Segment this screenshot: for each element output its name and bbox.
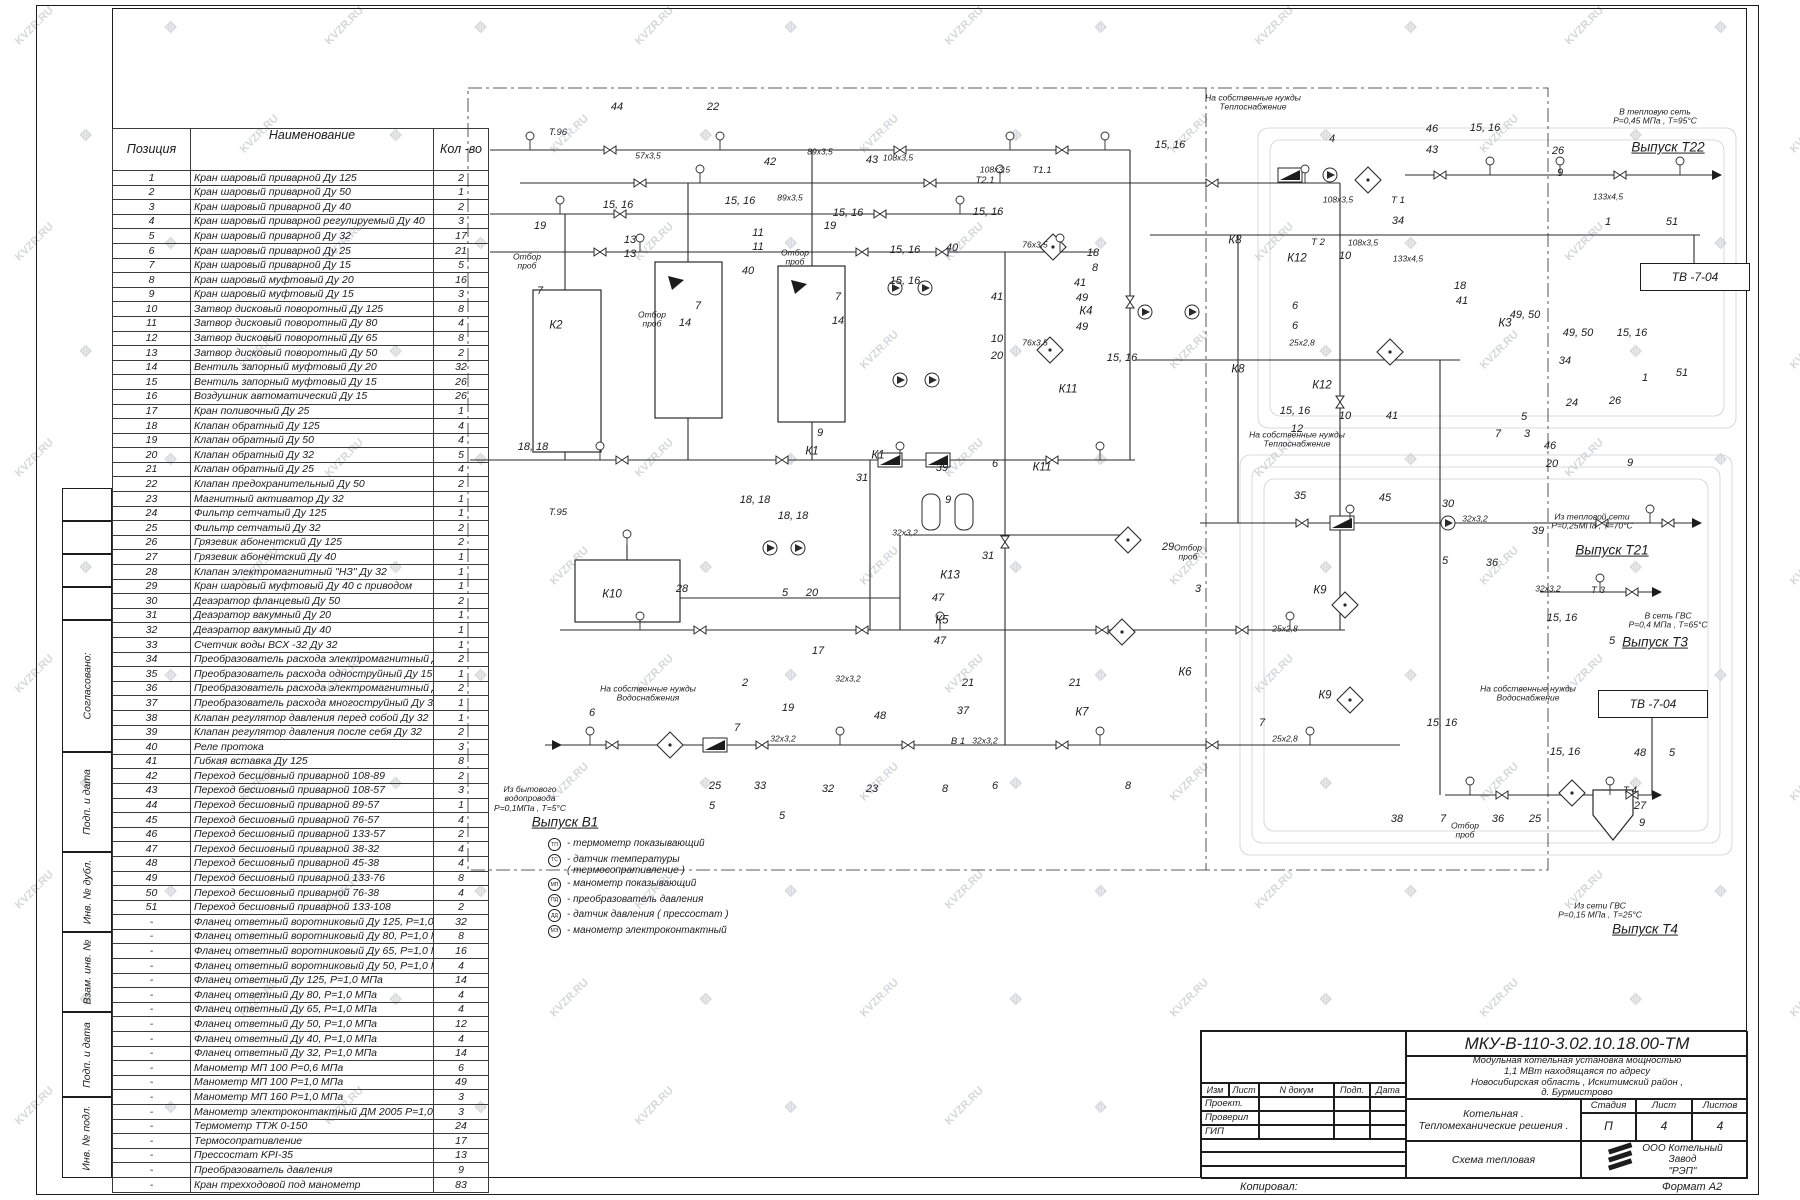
schematic-label: 26 [1609, 395, 1621, 407]
schematic-label: 15, 16 [1550, 746, 1581, 758]
table-row: 46Переход бесшовный приварной 133-572 [113, 827, 489, 842]
row-qty: 1 [434, 579, 489, 594]
row-name: Затвор дисковый поворотный Ду 125 [191, 302, 434, 317]
schematic-label: 18, 18 [518, 441, 549, 453]
schematic-label: 8 [1125, 780, 1131, 792]
row-position: 33 [113, 638, 191, 653]
row-position: 8 [113, 273, 191, 288]
schematic-label: 25х2,8 [1272, 624, 1298, 633]
schematic-label: 40 [742, 265, 754, 277]
row-qty: 26 [434, 389, 489, 404]
row-name: Фильтр сетчатый Ду 125 [191, 506, 434, 521]
row-qty: 2 [434, 535, 489, 550]
table-row: 50Переход бесшовный приварной 76-384 [113, 886, 489, 901]
table-row: 29Кран шаровый муфтовый Ду 40 с приводом… [113, 579, 489, 594]
row-name: Кран шаровый приварной регулируемый Ду 4… [191, 214, 434, 229]
schematic-label: 6 [1292, 320, 1298, 332]
row-name: Фланец ответный воротниковый Ду 65, Р=1,… [191, 944, 434, 959]
row-name: Кран шаровый приварной Ду 15 [191, 258, 434, 273]
schematic-label: В сеть ГВС Р=0,4 МПа , Т=65°С [1628, 612, 1707, 631]
table-row: 41Гибкая вставка Ду 1258 [113, 754, 489, 769]
schematic-label: 5 [779, 810, 785, 822]
outlet-label: Выпуск Т21 [1575, 544, 1648, 559]
schematic-label: 15, 16 [1547, 612, 1578, 624]
company-name: ООО Котельный Завод "РЭП" [1642, 1143, 1722, 1178]
outlet-label: Выпуск Т4 [1612, 923, 1678, 938]
table-row: -Кран трехходовой под манометр83 [113, 1177, 489, 1192]
row-name: Грязевик абонентский Ду 40 [191, 550, 434, 565]
row-position: 31 [113, 608, 191, 623]
row-position: 29 [113, 579, 191, 594]
row-position: - [113, 1148, 191, 1163]
legend-item: ТС- датчик температуры ( термосопративле… [548, 854, 729, 876]
row-qty: 16 [434, 944, 489, 959]
row-name: Кран шаровый приварной Ду 25 [191, 243, 434, 258]
row-name: Деаэратор фланцевый Ду 50 [191, 594, 434, 609]
row-position: 24 [113, 506, 191, 521]
row-name: Фланец ответный воротниковый Ду 80, Р=1,… [191, 929, 434, 944]
row-qty: 2 [434, 827, 489, 842]
schematic-label: 32х3,2 [892, 528, 918, 537]
row-position: 16 [113, 389, 191, 404]
table-row: 22Клапан предохранительный Ду 502 [113, 477, 489, 492]
table-row: -Преобразователь давления9 [113, 1163, 489, 1178]
schematic-label: 5 [1521, 411, 1527, 423]
schematic-label: 7 [537, 285, 543, 297]
col-header-name: Наименование [191, 129, 434, 171]
schematic-label: 26 [1552, 145, 1564, 157]
sheets-label: Листов [1692, 1099, 1748, 1113]
schematic-label: 2 [742, 677, 748, 689]
schematic-label: К9 [1313, 585, 1326, 598]
row-name: Переход бесшовный приварной 89-57 [191, 798, 434, 813]
table-row: 16Воздушник автоматический Ду 1526 [113, 389, 489, 404]
row-position: 19 [113, 433, 191, 448]
row-position: 17 [113, 404, 191, 419]
row-name: Воздушник автоматический Ду 15 [191, 389, 434, 404]
instrument-circle-icon: МП [548, 878, 561, 891]
table-row: 9Кран шаровый муфтовый Ду 153 [113, 287, 489, 302]
schematic-label: К6 [1178, 667, 1191, 680]
table-row: 37Преобразователь расхода многоструйный … [113, 696, 489, 711]
table-row: 44Переход бесшовный приварной 89-571 [113, 798, 489, 813]
schematic-label: 18 [1087, 247, 1099, 259]
schematic-label: 11 [752, 227, 763, 239]
schematic-label: К8 [1231, 364, 1244, 377]
row-name: Фланец ответный Ду 32, Р=1,0 МПа [191, 1046, 434, 1061]
row-position: 23 [113, 492, 191, 507]
row-name: Деаэратор вакумный Ду 40 [191, 623, 434, 638]
row-name: Фланец ответный воротниковый Ду 125, Р=1… [191, 915, 434, 930]
row-position: - [113, 1032, 191, 1047]
row-position: - [113, 988, 191, 1003]
sidebar-empty-cell [62, 521, 112, 554]
row-name: Переход бесшовный приварной 133-76 [191, 871, 434, 886]
schematic-label: 49 [1076, 292, 1088, 304]
schematic-label: 41 [991, 291, 1003, 303]
schematic-label: 15, 16 [833, 207, 864, 219]
col-header-qty: Кол -во [434, 129, 489, 171]
schematic-label: 39 [936, 462, 948, 474]
schematic-label: 4 [1329, 133, 1335, 145]
table-row: 36Преобразователь расхода электромагнитн… [113, 681, 489, 696]
row-name: Счетчик воды ВСХ -32 Ду 32 [191, 638, 434, 653]
row-position: - [113, 1061, 191, 1076]
stamp-empty [1370, 1111, 1406, 1125]
table-row: -Фланец ответный Ду 50, Р=1,0 МПа12 [113, 1017, 489, 1032]
schematic-label: 41 [1456, 295, 1468, 307]
schematic-label: 17 [812, 645, 824, 657]
row-name: Переход бесшовный приварной 133-108 [191, 900, 434, 915]
schematic-label: В 1 [951, 737, 965, 747]
stamp-empty [1334, 1111, 1370, 1125]
row-name: Кран шаровый приварной Ду 32 [191, 229, 434, 244]
row-qty: 1 [434, 667, 489, 682]
row-qty: 1 [434, 638, 489, 653]
schematic-label: 13 [624, 234, 636, 246]
schematic-label: Т 4 [1623, 786, 1637, 796]
schematic-label: Т2.1 [975, 176, 994, 186]
schematic-label: 21 [1069, 677, 1081, 689]
row-name: Кран поливочный Ду 25 [191, 404, 434, 419]
row-position: 27 [113, 550, 191, 565]
row-qty: 12 [434, 1017, 489, 1032]
schematic-label: К2 [549, 320, 562, 333]
row-name: Манометр МП 100 Р=0,6 МПа [191, 1061, 434, 1076]
row-name: Клапан обратный Ду 25 [191, 462, 434, 477]
row-qty: 3 [434, 740, 489, 755]
row-position: 40 [113, 740, 191, 755]
schematic-label: К4 [1079, 306, 1092, 319]
table-row: -Фланец ответный воротниковый Ду 50, Р=1… [113, 959, 489, 974]
row-name: Фланец ответный Ду 125, Р=1,0 МПа [191, 973, 434, 988]
row-position: 42 [113, 769, 191, 784]
row-qty: 2 [434, 681, 489, 696]
row-qty: 3 [434, 1090, 489, 1105]
row-qty: 2 [434, 200, 489, 215]
schematic-label: 15, 16 [1470, 122, 1501, 134]
doc-description: Модульная котельная установка мощностью … [1406, 1056, 1748, 1099]
table-row: 33Счетчик воды ВСХ -32 Ду 321 [113, 638, 489, 653]
schematic-label: 34 [1559, 355, 1571, 367]
row-name: Манометр МП 160 Р=1,0 МПа [191, 1090, 434, 1105]
row-name: Переход бесшовный приварной 76-57 [191, 813, 434, 828]
stamp-h-ndoc: N докум [1259, 1083, 1334, 1097]
parts-table: Позиция Наименование Кол -во 1Кран шаров… [112, 128, 489, 1193]
schematic-label: 32х3,2 [770, 734, 796, 743]
schematic-label: 43 [866, 154, 878, 166]
doc-number: МКУ-В-110-3.02.10.18.00-ТМ [1406, 1031, 1748, 1056]
row-qty: 1 [434, 798, 489, 813]
legend-text: - преобразователь давления [567, 894, 703, 905]
schematic-label: Отбор проб [1174, 544, 1202, 563]
row-position: 22 [113, 477, 191, 492]
table-row: 27Грязевик абонентский Ду 401 [113, 550, 489, 565]
row-name: Прессостат KPI-35 [191, 1148, 434, 1163]
title-block: Изм Лист N докум Подп. Дата Проект.Прове… [1200, 1030, 1747, 1178]
legend-text: - датчик давления ( прессостат ) [567, 909, 729, 920]
row-name: Преобразователь расхода электромагнитный… [191, 681, 434, 696]
sidebar-cell: Инв. № дубл. [62, 852, 112, 932]
instrument-circle-icon: МЭ [548, 925, 561, 938]
table-row: 51Переход бесшовный приварной 133-1082 [113, 900, 489, 915]
table-row: 31Деаэратор вакумный Ду 201 [113, 608, 489, 623]
row-qty: 14 [434, 973, 489, 988]
stamp-role-label: Проверил [1201, 1111, 1259, 1125]
table-row: -Манометр МП 100 Р=1,0 МПа49 [113, 1075, 489, 1090]
row-name: Вентиль запорный муфтовый Ду 20 [191, 360, 434, 375]
schematic-label: 49, 50 [1510, 309, 1541, 321]
row-qty: 1 [434, 550, 489, 565]
schematic-label: Отбор проб [638, 311, 666, 330]
row-position: 5 [113, 229, 191, 244]
schematic-label: 36 [1492, 813, 1504, 825]
schematic-label: 57х3,5 [635, 151, 661, 160]
schematic-label: 30 [1442, 498, 1454, 510]
stamp-role-label: ГИП [1201, 1125, 1259, 1139]
table-row: 3Кран шаровый приварной Ду 402 [113, 200, 489, 215]
row-name: Клапан обратный Ду 50 [191, 433, 434, 448]
row-position: 35 [113, 667, 191, 682]
row-qty: 2 [434, 652, 489, 667]
schematic-label: 133х4,5 [1593, 192, 1623, 201]
row-position: 43 [113, 783, 191, 798]
schematic-label: К7 [1075, 707, 1088, 720]
schematic-label: 51 [1676, 367, 1688, 379]
row-qty: 21 [434, 243, 489, 258]
row-name: Термометр ТТЖ 0-150 [191, 1119, 434, 1134]
row-qty: 2 [434, 900, 489, 915]
schematic-label: 15, 16 [890, 275, 921, 287]
instrument-circle-icon: ДД [548, 909, 561, 922]
schematic-label: 20 [1546, 458, 1558, 470]
row-qty: 4 [434, 813, 489, 828]
row-position: 12 [113, 331, 191, 346]
table-row: 21Клапан обратный Ду 254 [113, 462, 489, 477]
row-name: Переход бесшовный приварной 76-38 [191, 886, 434, 901]
row-position: 47 [113, 842, 191, 857]
legend-text: - манометр показывающий [567, 878, 696, 889]
table-row: 4Кран шаровый приварной регулируемый Ду … [113, 214, 489, 229]
row-name: Преобразователь расхода многоструйный Ду… [191, 696, 434, 711]
schematic-label: 46 [1544, 440, 1556, 452]
schematic-label: 89х3,5 [777, 193, 803, 202]
schematic-label: 15, 16 [725, 195, 756, 207]
stamp-empty [1334, 1097, 1370, 1111]
row-qty: 1 [434, 710, 489, 725]
table-row: -Фланец ответный воротниковый Ду 65, Р=1… [113, 944, 489, 959]
row-name: Переход бесшовный приварной 38-32 [191, 842, 434, 857]
legend-item: ДД- датчик давления ( прессостат ) [548, 909, 729, 922]
row-qty: 17 [434, 1134, 489, 1149]
schematic-label: На собственные нужды Водоснабжения [600, 685, 696, 704]
table-row: 17Кран поливочный Ду 251 [113, 404, 489, 419]
row-name: Фланец ответный Ду 80, Р=1,0 МПа [191, 988, 434, 1003]
row-name: Вентиль запорный муфтовый Ду 15 [191, 375, 434, 390]
symbols-legend: ТП- термометр показывающийТС- датчик тем… [548, 838, 729, 940]
table-row: 6Кран шаровый приварной Ду 2521 [113, 243, 489, 258]
row-qty: 9 [434, 1163, 489, 1178]
table-row: 14Вентиль запорный муфтовый Ду 2032 [113, 360, 489, 375]
schematic-label: 48 [1634, 747, 1646, 759]
row-qty: 16 [434, 273, 489, 288]
schematic-label: 5 [1442, 555, 1448, 567]
table-row: 28Клапан электромагнитный "НЗ" Ду 321 [113, 565, 489, 580]
stamp-empty [1334, 1125, 1370, 1139]
row-name: Клапан регулятор давления после себя Ду … [191, 725, 434, 740]
row-name: Преобразователь давления [191, 1163, 434, 1178]
schematic-label: 9 [945, 494, 951, 506]
table-row: 5Кран шаровый приварной Ду 3217 [113, 229, 489, 244]
schematic-label: 76х3,5 [1022, 240, 1048, 249]
stage-label: Стадия [1581, 1099, 1636, 1113]
table-row: 30Деаэратор фланцевый Ду 502 [113, 594, 489, 609]
row-name: Затвор дисковый поворотный Ду 50 [191, 346, 434, 361]
schematic-label: К12 [1312, 380, 1332, 393]
schematic-label: 25х2,8 [1289, 338, 1315, 347]
sheets-value: 4 [1692, 1113, 1748, 1141]
row-qty: 3 [434, 1105, 489, 1120]
table-row: 24Фильтр сетчатый Ду 1251 [113, 506, 489, 521]
legend-item: ТП- термометр показывающий [548, 838, 729, 851]
schematic-label: 7 [1440, 813, 1446, 825]
row-position: - [113, 1119, 191, 1134]
schematic-label: 89х3,5 [807, 147, 833, 156]
row-position: 37 [113, 696, 191, 711]
schematic-label: 1 [1605, 216, 1611, 228]
schematic-label: 18 [1454, 280, 1466, 292]
equipment-box: ТВ -7-04 [1640, 263, 1750, 291]
schematic-label: 6 [992, 780, 998, 792]
schematic-label: 10 [1339, 410, 1351, 422]
schematic-label: 19 [824, 220, 836, 232]
sidebar-empty-cell [62, 488, 112, 521]
schematic-label: 6 [992, 458, 998, 470]
schematic-label: 32х3,2 [1535, 584, 1561, 593]
row-qty: 32 [434, 360, 489, 375]
schematic-label: 19 [782, 702, 794, 714]
row-name: Кран шаровый приварной Ду 125 [191, 171, 434, 186]
stamp-h-izm: Изм [1201, 1083, 1229, 1097]
schematic-label: 6 [1292, 300, 1298, 312]
schematic-label: 7 [695, 300, 701, 312]
schematic-label: 31 [856, 472, 868, 484]
schematic-label: 36 [1486, 557, 1498, 569]
table-row: 12Затвор дисковый поворотный Ду 658 [113, 331, 489, 346]
schematic-label: 108х3,5 [1348, 238, 1378, 247]
table-row: 7Кран шаровый приварной Ду 155 [113, 258, 489, 273]
equipment-box: ТВ -7-04 [1598, 690, 1708, 718]
schematic-label: К10 [602, 589, 622, 602]
schematic-label: 46 [1426, 123, 1438, 135]
table-row: -Термометр ТТЖ 0-15024 [113, 1119, 489, 1134]
row-position: 4 [113, 214, 191, 229]
schematic-label: 15, 16 [603, 199, 634, 211]
row-name: Манометр электроконтактный ДМ 2005 Р=1,0… [191, 1105, 434, 1120]
row-qty: 5 [434, 258, 489, 273]
row-position: - [113, 1075, 191, 1090]
row-name: Фланец ответный воротниковый Ду 50, Р=1,… [191, 959, 434, 974]
schematic-label: Из сети ГВС Р=0,15 МПа , Т=25°С [1558, 902, 1642, 921]
schematic-label: 5 [782, 587, 788, 599]
stamp-empty [1259, 1125, 1334, 1139]
schematic-label: 32х3,2 [835, 674, 861, 683]
schematic-label: 108х3,5 [1323, 195, 1353, 204]
table-row: 8Кран шаровый муфтовый Ду 2016 [113, 273, 489, 288]
row-qty: 17 [434, 229, 489, 244]
schematic-label: 7 [1259, 717, 1265, 729]
row-position: 49 [113, 871, 191, 886]
row-name: Кран трехходовой под манометр [191, 1177, 434, 1192]
row-position: 1 [113, 171, 191, 186]
row-position: 20 [113, 448, 191, 463]
schematic-label: 8 [1092, 262, 1098, 274]
row-name: Термосопративление [191, 1134, 434, 1149]
row-qty: 4 [434, 316, 489, 331]
row-name: Преобразователь расхода одноструйный Ду … [191, 667, 434, 682]
schematic-label: 15, 16 [1107, 352, 1138, 364]
schematic-label: Т.96 [549, 128, 567, 138]
schematic-label: 47 [932, 592, 944, 604]
row-position: 14 [113, 360, 191, 375]
schematic-label: 35 [1294, 490, 1306, 502]
row-position: 36 [113, 681, 191, 696]
schematic-label: 7 [1495, 428, 1501, 440]
row-qty: 8 [434, 302, 489, 317]
table-row: -Фланец ответный Ду 125, Р=1,0 МПа14 [113, 973, 489, 988]
row-position: 3 [113, 200, 191, 215]
table-row: 49Переход бесшовный приварной 133-768 [113, 871, 489, 886]
stamp-empty [1201, 1152, 1406, 1165]
schematic-label: К11 [1033, 462, 1052, 475]
schematic-label: 5 [1669, 747, 1675, 759]
instrument-circle-icon: ТП [548, 838, 561, 851]
drawing-sheet: KVZR.RU▨KVZR.RU▨KVZR.RU▨KVZR.RU▨KVZR.RU▨… [0, 0, 1800, 1200]
row-position: 50 [113, 886, 191, 901]
schematic-label: 33 [754, 780, 766, 792]
schematic-label: 29 [1162, 541, 1174, 553]
row-qty: 8 [434, 754, 489, 769]
row-position: 21 [113, 462, 191, 477]
row-position: 44 [113, 798, 191, 813]
schematic-label: Отбор проб [1451, 822, 1479, 841]
table-row: -Фланец ответный Ду 80, Р=1,0 МПа4 [113, 988, 489, 1003]
row-position: - [113, 1017, 191, 1032]
stamp-role-label: Проект. [1201, 1097, 1259, 1111]
schematic-label: 32 [822, 783, 834, 795]
schematic-label: 5 [1609, 635, 1615, 647]
row-qty: 1 [434, 506, 489, 521]
schematic-label: 25 [1529, 813, 1541, 825]
row-qty: 1 [434, 565, 489, 580]
row-position: - [113, 1046, 191, 1061]
schematic-label: К13 [940, 570, 960, 583]
schematic-label: 20 [991, 350, 1003, 362]
row-name: Кран шаровый муфтовый Ду 20 [191, 273, 434, 288]
table-row: -Фланец ответный Ду 40, Р=1,0 МПа4 [113, 1032, 489, 1047]
format-label: Формат А2 [1662, 1181, 1722, 1193]
table-row: 2Кран шаровый приварной Ду 501 [113, 185, 489, 200]
schematic-label: К9 [1318, 690, 1331, 703]
row-name: Затвор дисковый поворотный Ду 80 [191, 316, 434, 331]
row-qty: 4 [434, 1002, 489, 1017]
table-row: 1Кран шаровый приварной Ду 1252 [113, 171, 489, 186]
schematic-label: 25 [709, 780, 721, 792]
schematic-label: 22 [707, 101, 719, 113]
row-name: Фланец ответный Ду 40, Р=1,0 МПа [191, 1032, 434, 1047]
stage-value: П [1581, 1113, 1636, 1141]
row-qty: 2 [434, 346, 489, 361]
